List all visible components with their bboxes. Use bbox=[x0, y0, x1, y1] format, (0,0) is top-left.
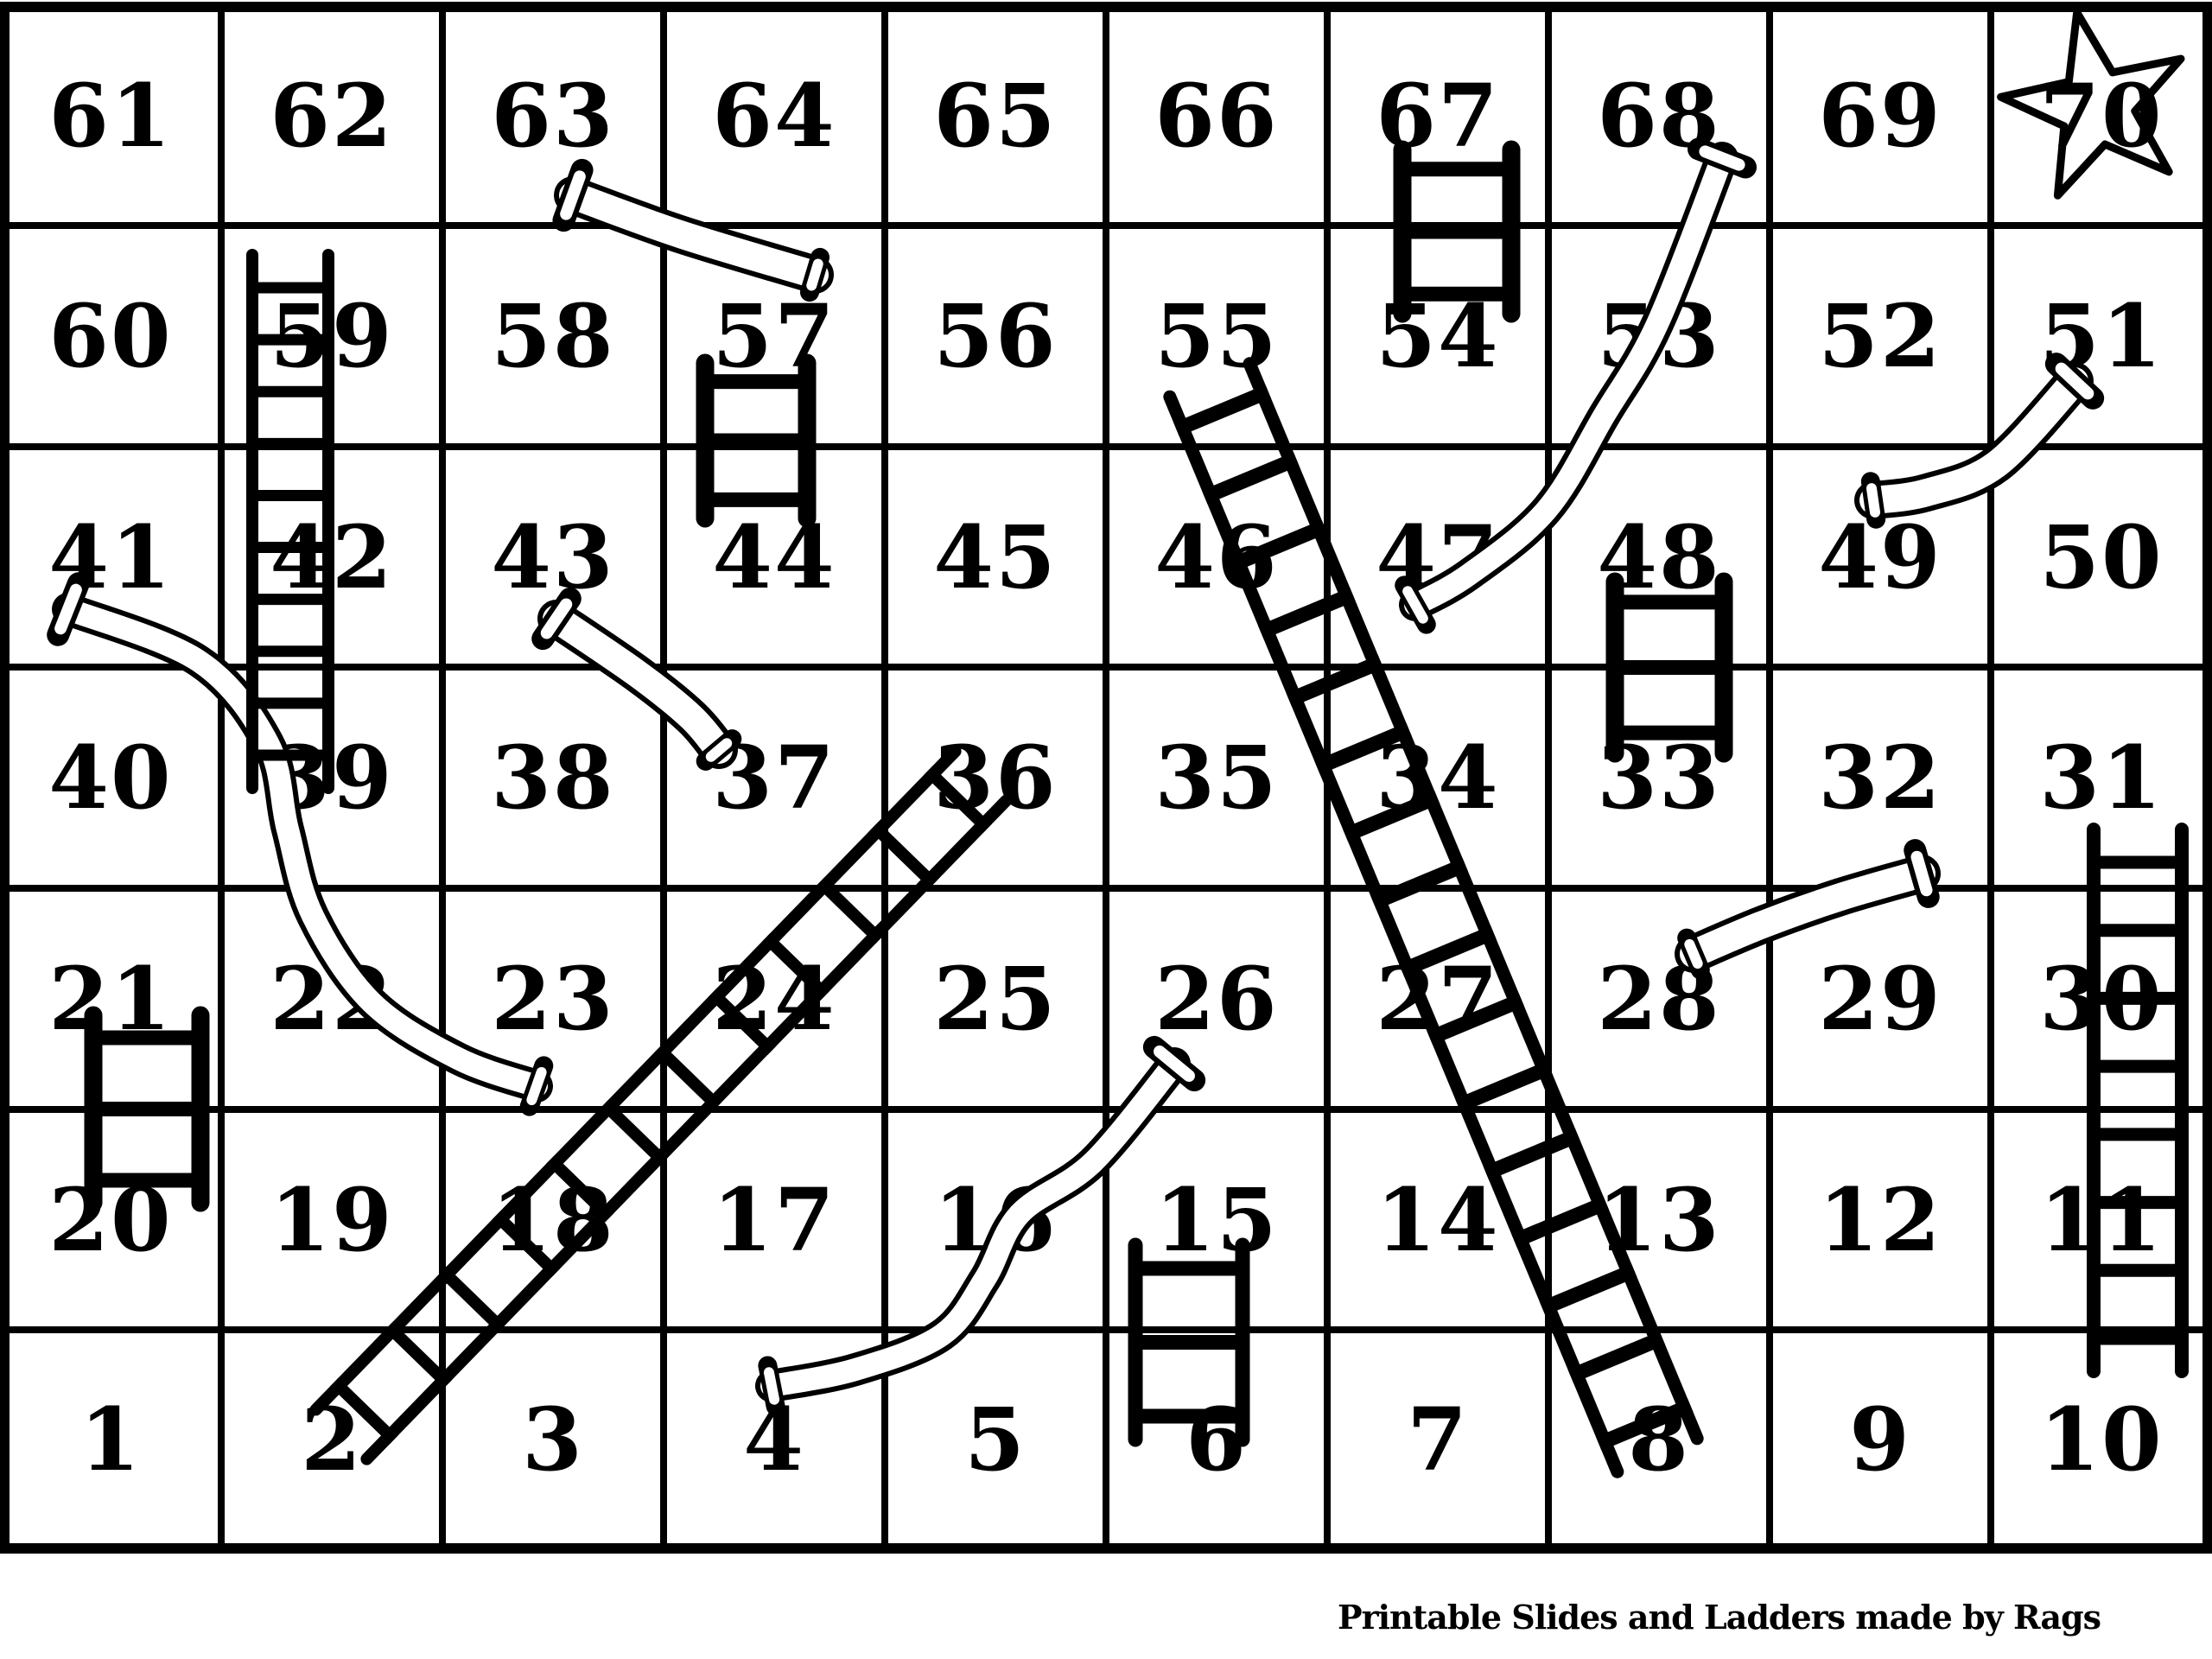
ladder-11-31 bbox=[2087, 829, 2189, 1371]
slide-37-43 bbox=[543, 599, 732, 761]
board-objects-layer bbox=[0, 0, 2212, 1659]
ladder-54-67 bbox=[1394, 149, 1521, 314]
ladder-44-57 bbox=[696, 363, 817, 518]
ladder-39-59 bbox=[246, 255, 334, 788]
slides-and-ladders-board: 6162636465666768697060595857565554535251… bbox=[0, 0, 2212, 1659]
slide-22-40 bbox=[58, 583, 543, 1106]
slide-68-47 bbox=[1404, 149, 1745, 624]
slide-28-32 bbox=[1687, 850, 1929, 969]
credit-text: Printable Slides and Ladders made by Rag… bbox=[1338, 1598, 2101, 1637]
slide-49-51 bbox=[1871, 364, 2093, 519]
ladder-33-48 bbox=[1606, 582, 1733, 753]
ladder-6-15 bbox=[1128, 1245, 1250, 1440]
ladder-20-21 bbox=[85, 1015, 210, 1203]
slide-64-57 bbox=[563, 170, 820, 292]
